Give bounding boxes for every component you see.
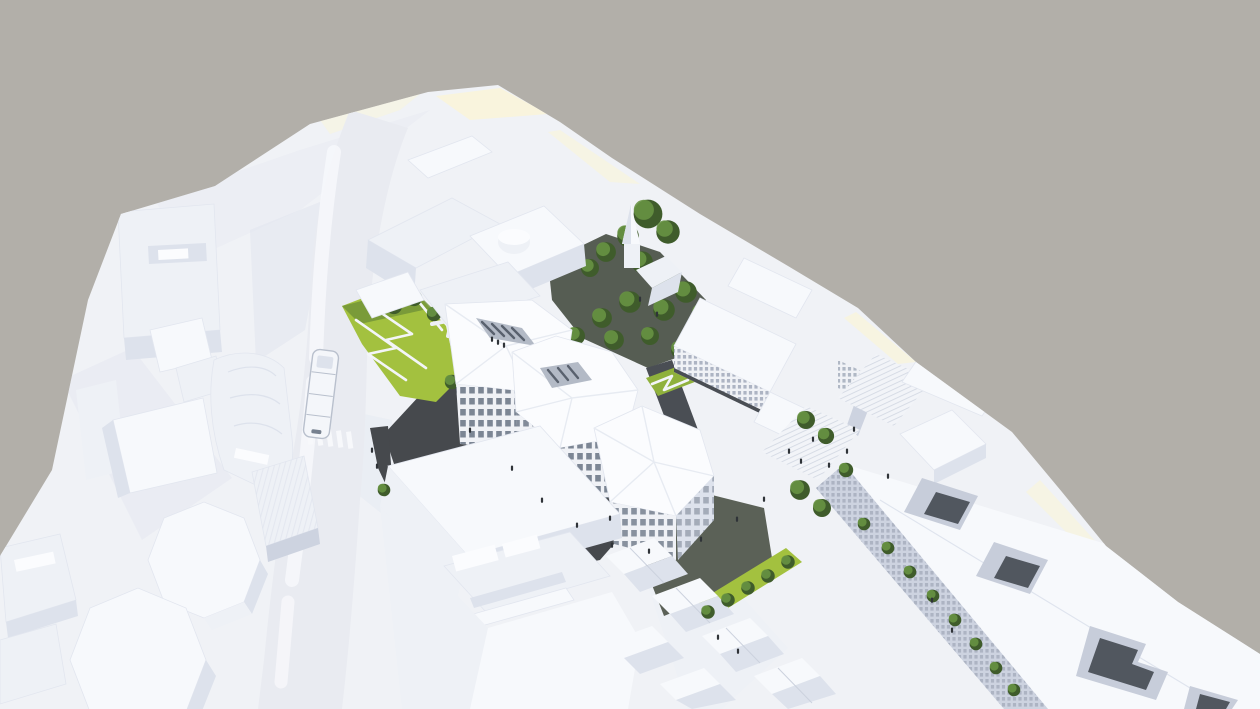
cylinder-tower-top xyxy=(498,229,530,245)
site-model-scene xyxy=(0,0,1260,709)
architectural-render-canvas xyxy=(0,0,1260,709)
road-median-3 xyxy=(281,602,288,682)
